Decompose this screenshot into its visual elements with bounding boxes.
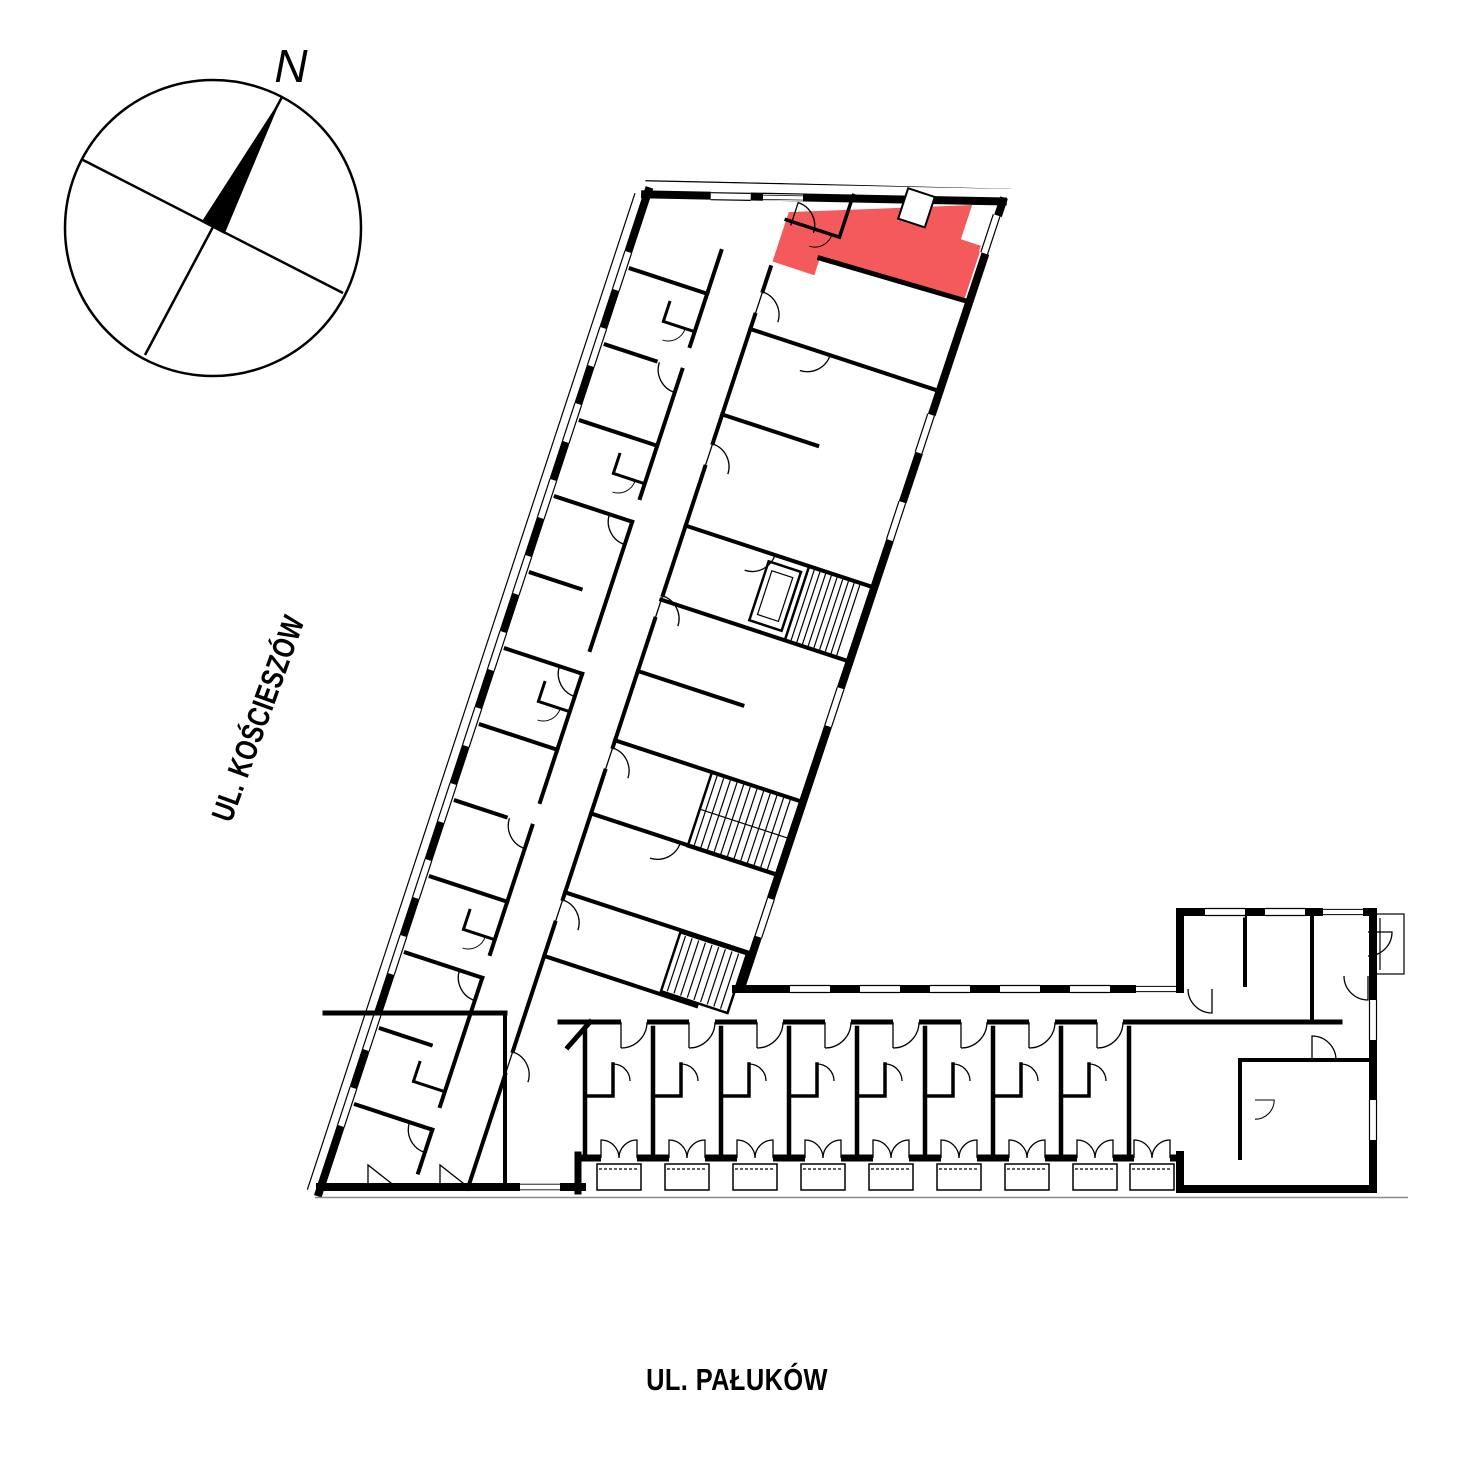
door-arc bbox=[1188, 989, 1212, 1013]
window-marker bbox=[790, 986, 830, 993]
window-marker bbox=[512, 555, 531, 595]
window-marker bbox=[1070, 986, 1110, 993]
window-marker bbox=[860, 986, 900, 993]
window-marker bbox=[915, 414, 934, 454]
door-arc bbox=[555, 900, 585, 930]
apartment-unit bbox=[993, 1022, 1055, 1190]
window-marker bbox=[1000, 986, 1040, 993]
wing-corridor-right-wall bbox=[468, 267, 771, 1188]
right-block bbox=[1180, 909, 1404, 1190]
apartment-unit bbox=[1061, 1022, 1123, 1190]
window-marker bbox=[887, 501, 906, 541]
street-label-koscieszow: UL. KOŚCIESZÓW bbox=[205, 611, 312, 826]
apartment-unit bbox=[857, 1022, 919, 1190]
floor-plan-svg: N UL. KOŚCIESZÓW UL. PAŁUKÓW bbox=[0, 0, 1477, 1477]
floor-plan-page: N UL. KOŚCIESZÓW UL. PAŁUKÓW bbox=[0, 0, 1477, 1477]
window-marker bbox=[763, 195, 803, 200]
stair-core-3 bbox=[661, 932, 747, 1013]
wing-right-wall bbox=[742, 201, 1003, 988]
highlighted-unit[interactable] bbox=[773, 151, 994, 322]
window-marker bbox=[1265, 909, 1305, 916]
window-marker bbox=[463, 707, 482, 747]
door-arc bbox=[755, 292, 785, 322]
window-marker bbox=[338, 1087, 357, 1127]
window-marker bbox=[755, 898, 774, 938]
door-arc bbox=[705, 444, 735, 474]
window-marker bbox=[413, 859, 432, 899]
window-marker bbox=[1370, 1000, 1377, 1040]
window-marker bbox=[1205, 909, 1245, 916]
door-arc bbox=[1312, 1036, 1336, 1060]
window-marker bbox=[825, 687, 844, 727]
compass-north-label: N bbox=[274, 40, 308, 92]
door-arc bbox=[505, 1052, 535, 1082]
apartment-unit bbox=[721, 1022, 783, 1190]
stair-core-1 bbox=[747, 554, 872, 661]
window-marker bbox=[1136, 987, 1176, 992]
window-marker bbox=[587, 327, 606, 367]
wing-left-bath-walls bbox=[413, 302, 700, 1091]
window-marker bbox=[520, 1184, 560, 1190]
french-door bbox=[1130, 1140, 1174, 1190]
apartment-unit bbox=[789, 1022, 851, 1190]
window-marker bbox=[363, 1011, 382, 1051]
apartment-unit bbox=[585, 1022, 647, 1190]
street-label-palukow: UL. PAŁUKÓW bbox=[646, 1363, 828, 1398]
window-marker bbox=[981, 214, 1000, 254]
building-plan bbox=[307, 77, 1408, 1301]
door-arc bbox=[1255, 1100, 1274, 1119]
window-marker bbox=[1323, 910, 1363, 915]
apartment-unit bbox=[925, 1022, 987, 1190]
angled-wing bbox=[307, 77, 1011, 1301]
door-arc bbox=[605, 748, 635, 778]
window-marker bbox=[488, 631, 507, 671]
door-arc bbox=[1344, 976, 1368, 1000]
compass-rose: N bbox=[65, 40, 361, 376]
window-marker bbox=[438, 783, 457, 823]
window-marker bbox=[1370, 1100, 1377, 1140]
window-marker bbox=[388, 935, 407, 975]
north-needle-icon bbox=[202, 97, 283, 234]
window-marker bbox=[930, 986, 970, 993]
wing-right-room-walls bbox=[544, 329, 938, 1018]
window-marker bbox=[537, 479, 556, 519]
apartment-unit bbox=[653, 1022, 715, 1190]
window-marker bbox=[711, 193, 751, 201]
window-marker bbox=[562, 403, 581, 443]
window-marker bbox=[612, 251, 631, 291]
